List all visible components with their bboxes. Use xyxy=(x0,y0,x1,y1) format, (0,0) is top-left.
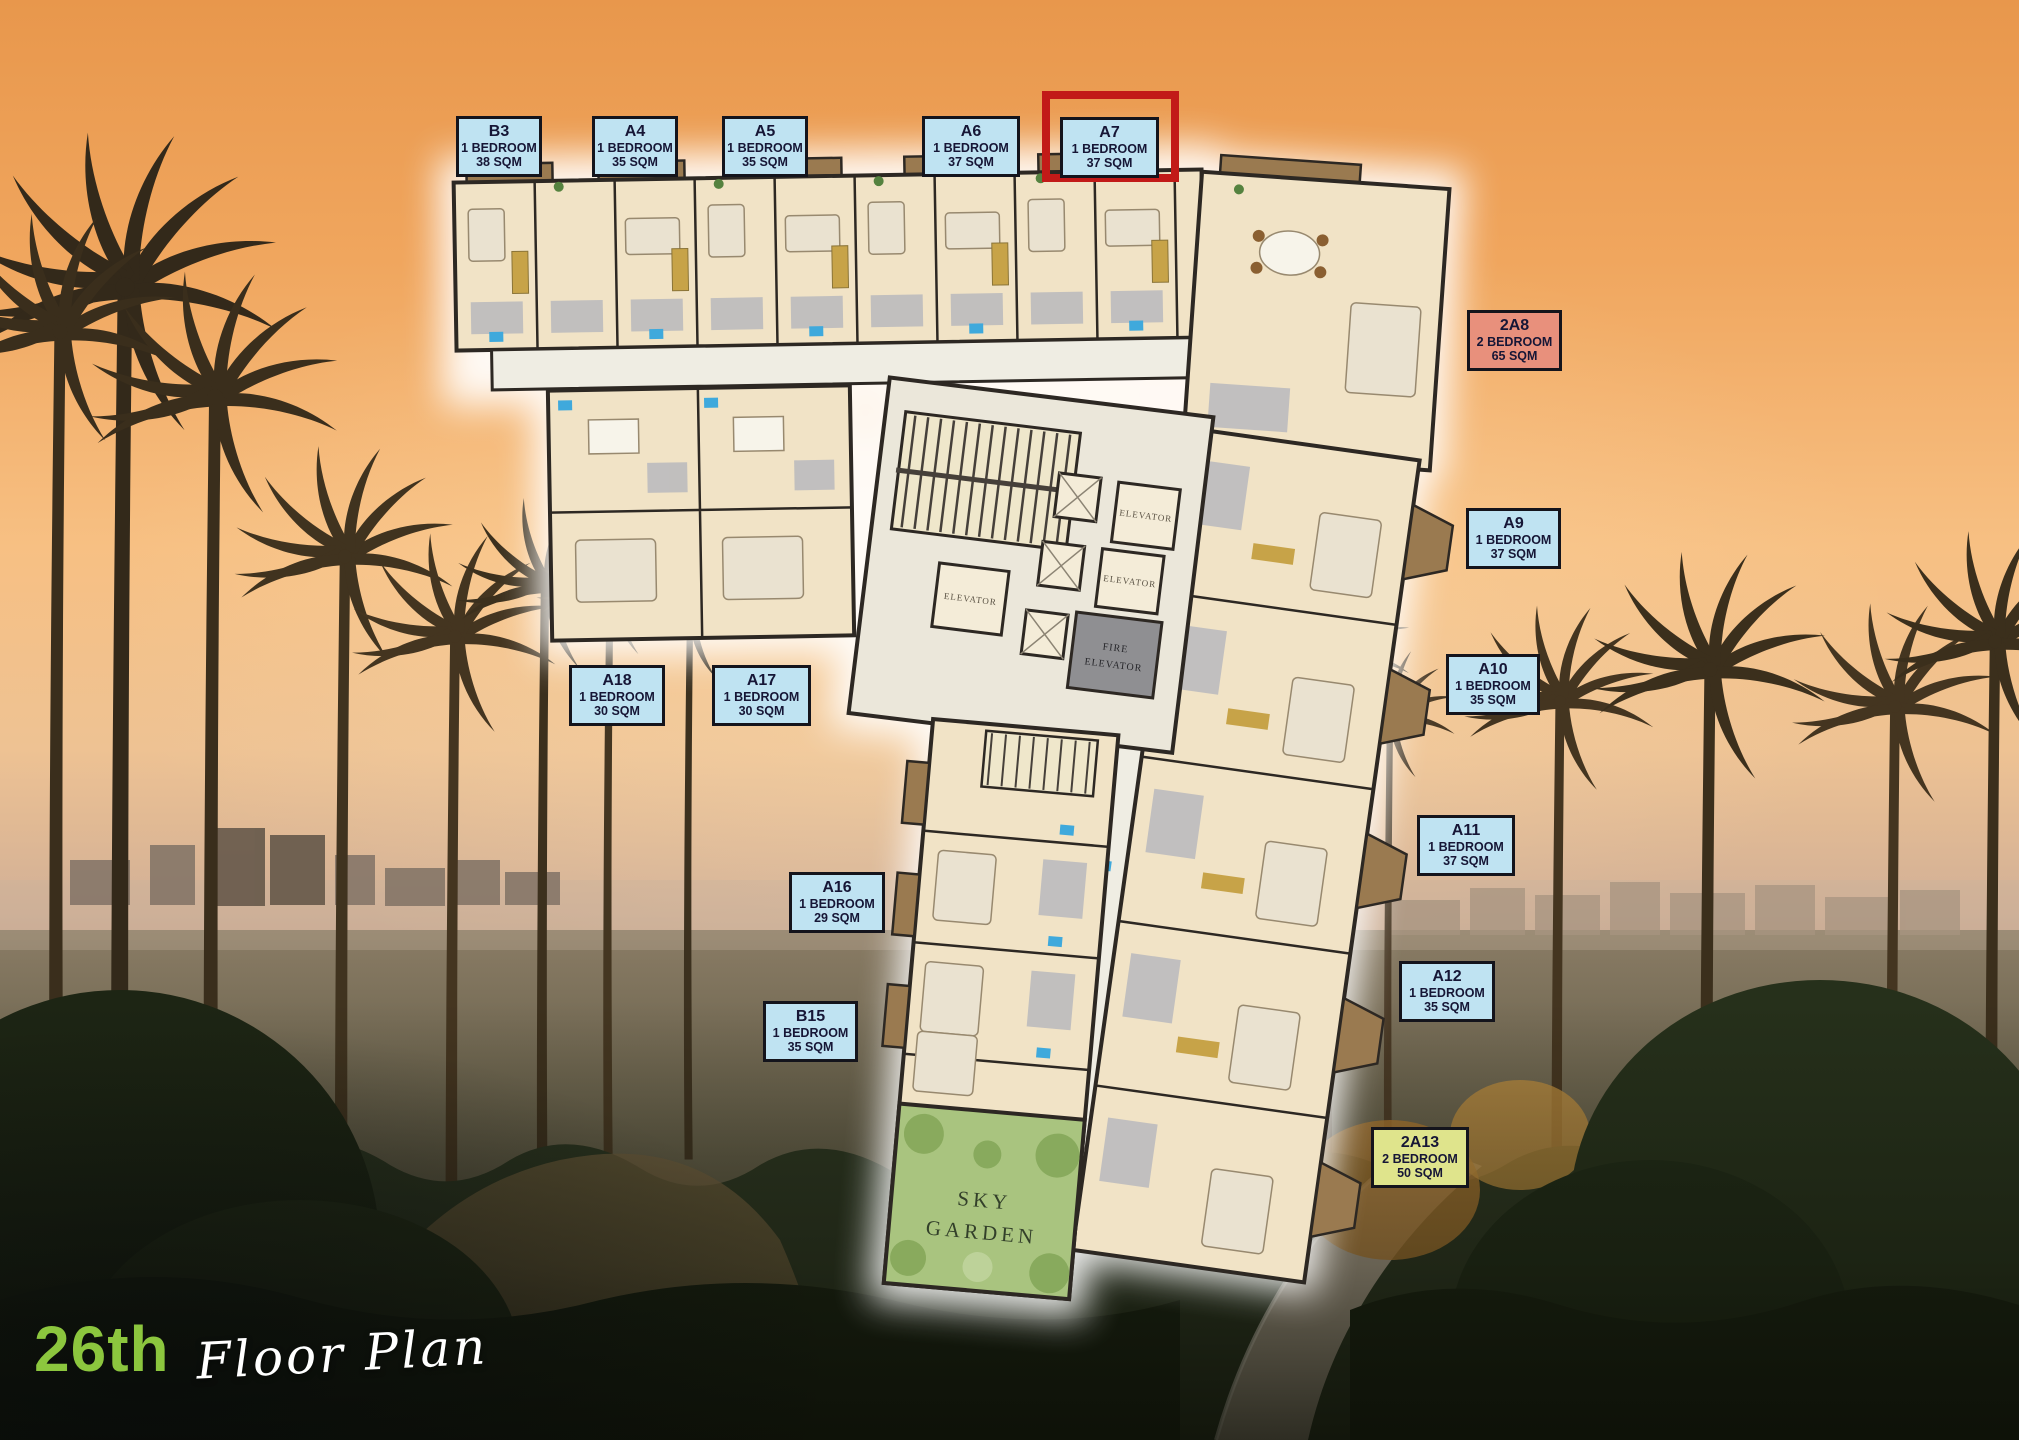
unit-type: 1 BEDROOM xyxy=(768,1026,853,1040)
unit-label-b15[interactable]: B15 1 BEDROOM 35 SQM xyxy=(763,1001,858,1062)
unit-area: 35 SQM xyxy=(597,155,673,169)
unit-id: B3 xyxy=(461,123,537,141)
unit-id: A18 xyxy=(574,672,660,690)
unit-id: A10 xyxy=(1451,661,1535,679)
floor-number: 26th xyxy=(34,1312,170,1386)
background-photo: ELEVATOR ELEVATOR ELEVATOR FIRE ELEVATOR xyxy=(0,0,2019,1440)
unit-label-b3[interactable]: B3 1 BEDROOM 38 SQM xyxy=(456,116,542,177)
floor-plan-script: Floor Plan xyxy=(194,1317,489,1390)
unit-label-a5[interactable]: A5 1 BEDROOM 35 SQM xyxy=(722,116,808,177)
unit-label-2a13[interactable]: 2A13 2 BEDROOM 50 SQM xyxy=(1371,1127,1469,1188)
fire-elevator: FIRE ELEVATOR xyxy=(1067,612,1162,698)
unit-type: 1 BEDROOM xyxy=(1422,840,1510,854)
unit-id: A6 xyxy=(927,123,1015,141)
sky-garden: SKY GARDEN xyxy=(884,1104,1085,1300)
unit-area: 65 SQM xyxy=(1472,349,1557,363)
unit-id: A4 xyxy=(597,123,673,141)
unit-label-a16[interactable]: A16 1 BEDROOM 29 SQM xyxy=(789,872,885,933)
unit-id: A12 xyxy=(1404,968,1490,986)
unit-label-a17[interactable]: A17 1 BEDROOM 30 SQM xyxy=(712,665,811,726)
unit-area: 35 SQM xyxy=(1451,693,1535,707)
unit-area: 30 SQM xyxy=(717,704,806,718)
unit-label-a4[interactable]: A4 1 BEDROOM 35 SQM xyxy=(592,116,678,177)
unit-id: 2A13 xyxy=(1376,1134,1464,1152)
unit-area: 37 SQM xyxy=(1065,156,1154,170)
stairs-lower xyxy=(981,731,1097,797)
unit-id: A7 xyxy=(1065,124,1154,142)
unit-label-a10[interactable]: A10 1 BEDROOM 35 SQM xyxy=(1446,654,1540,715)
elevator-core: ELEVATOR ELEVATOR ELEVATOR FIRE ELEVATOR xyxy=(849,378,1214,753)
unit-label-a18[interactable]: A18 1 BEDROOM 30 SQM xyxy=(569,665,665,726)
unit-id: A5 xyxy=(727,123,803,141)
unit-id: A9 xyxy=(1471,515,1556,533)
unit-type: 1 BEDROOM xyxy=(1065,142,1154,156)
unit-area: 37 SQM xyxy=(1471,547,1556,561)
unit-label-2a8[interactable]: 2A8 2 BEDROOM 65 SQM xyxy=(1467,310,1562,371)
unit-area: 37 SQM xyxy=(927,155,1015,169)
unit-label-a6[interactable]: A6 1 BEDROOM 37 SQM xyxy=(922,116,1020,177)
unit-type: 1 BEDROOM xyxy=(461,141,537,155)
unit-area: 35 SQM xyxy=(727,155,803,169)
unit-id: B15 xyxy=(768,1008,853,1026)
unit-type: 1 BEDROOM xyxy=(597,141,673,155)
unit-id: 2A8 xyxy=(1472,317,1557,335)
unit-id: A17 xyxy=(717,672,806,690)
unit-type: 1 BEDROOM xyxy=(717,690,806,704)
unit-area: 35 SQM xyxy=(1404,1000,1490,1014)
corner-unit-2a8 xyxy=(1182,154,1450,471)
unit-type: 1 BEDROOM xyxy=(927,141,1015,155)
unit-id: A11 xyxy=(1422,822,1510,840)
unit-id: A16 xyxy=(794,879,880,897)
unit-area: 50 SQM xyxy=(1376,1166,1464,1180)
unit-area: 30 SQM xyxy=(574,704,660,718)
page-title: 26th Floor Plan xyxy=(34,1312,488,1386)
unit-type: 1 BEDROOM xyxy=(1471,533,1556,547)
unit-type: 1 BEDROOM xyxy=(1451,679,1535,693)
unit-label-a12[interactable]: A12 1 BEDROOM 35 SQM xyxy=(1399,961,1495,1022)
unit-type: 2 BEDROOM xyxy=(1376,1152,1464,1166)
stairs xyxy=(891,412,1080,551)
sky-garden-label: SKY xyxy=(956,1186,1012,1215)
unit-area: 35 SQM xyxy=(768,1040,853,1054)
unit-type: 1 BEDROOM xyxy=(727,141,803,155)
unit-area: 38 SQM xyxy=(461,155,537,169)
unit-type: 2 BEDROOM xyxy=(1472,335,1557,349)
unit-type: 1 BEDROOM xyxy=(1404,986,1490,1000)
floor-plan-page: ELEVATOR ELEVATOR ELEVATOR FIRE ELEVATOR xyxy=(0,0,2019,1440)
unit-area: 37 SQM xyxy=(1422,854,1510,868)
unit-area: 29 SQM xyxy=(794,911,880,925)
unit-label-a9[interactable]: A9 1 BEDROOM 37 SQM xyxy=(1466,508,1561,569)
top-wing xyxy=(453,152,1205,391)
unit-label-a11[interactable]: A11 1 BEDROOM 37 SQM xyxy=(1417,815,1515,876)
left-block xyxy=(548,385,854,640)
unit-type: 1 BEDROOM xyxy=(574,690,660,704)
unit-label-a7[interactable]: A7 1 BEDROOM 37 SQM xyxy=(1060,117,1159,178)
unit-type: 1 BEDROOM xyxy=(794,897,880,911)
